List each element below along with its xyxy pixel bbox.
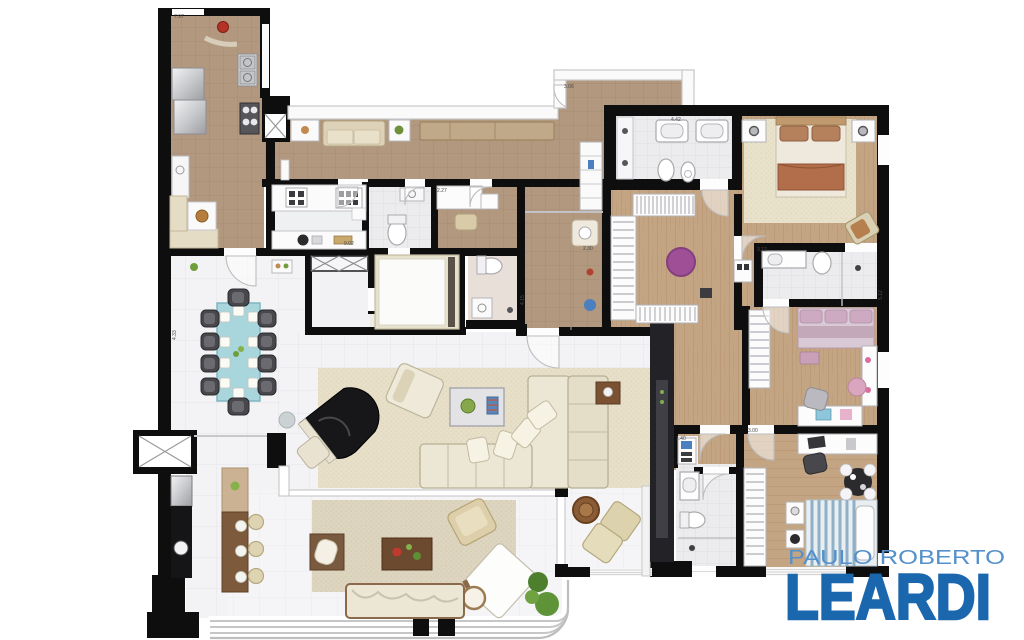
- svg-text:4.33: 4.33: [172, 330, 178, 340]
- svg-text:LEARDI: LEARDI: [785, 561, 991, 633]
- svg-text:9.02: 9.02: [344, 241, 354, 247]
- svg-text:2.30: 2.30: [583, 246, 593, 252]
- svg-text:4.42: 4.42: [671, 117, 681, 123]
- svg-text:7.97: 7.97: [174, 14, 184, 20]
- svg-text:4.15: 4.15: [520, 295, 526, 305]
- svg-text:1.40: 1.40: [676, 436, 686, 442]
- svg-text:3.12: 3.12: [757, 247, 767, 253]
- svg-text:3.06: 3.06: [564, 84, 574, 90]
- svg-text:5.12: 5.12: [878, 290, 884, 300]
- svg-text:2.27: 2.27: [437, 188, 447, 194]
- svg-text:3.00: 3.00: [748, 428, 758, 434]
